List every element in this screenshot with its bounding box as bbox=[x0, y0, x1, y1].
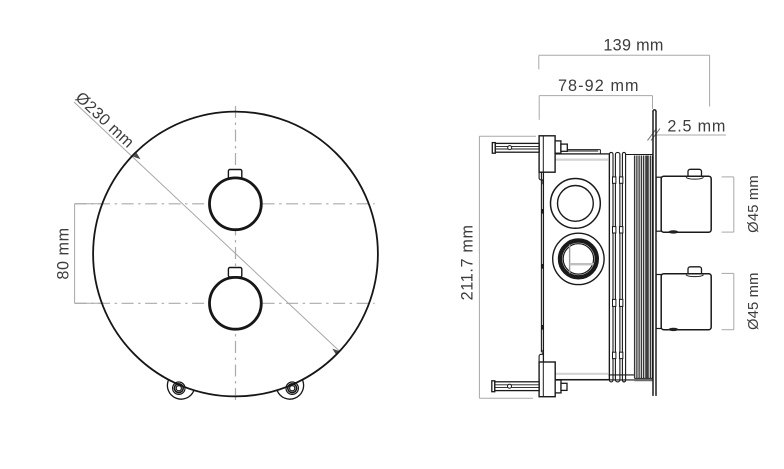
svg-text:211.7 mm: 211.7 mm bbox=[459, 224, 477, 300]
svg-text:Ø230 mm: Ø230 mm bbox=[72, 89, 138, 152]
svg-text:80 mm: 80 mm bbox=[55, 227, 73, 279]
svg-text:Ø45 mm: Ø45 mm bbox=[746, 272, 762, 330]
svg-text:Ø45 mm: Ø45 mm bbox=[746, 175, 762, 233]
svg-text:139 mm: 139 mm bbox=[603, 37, 663, 55]
svg-text:2.5 mm: 2.5 mm bbox=[667, 117, 726, 135]
svg-text:78-92 mm: 78-92 mm bbox=[558, 77, 640, 95]
